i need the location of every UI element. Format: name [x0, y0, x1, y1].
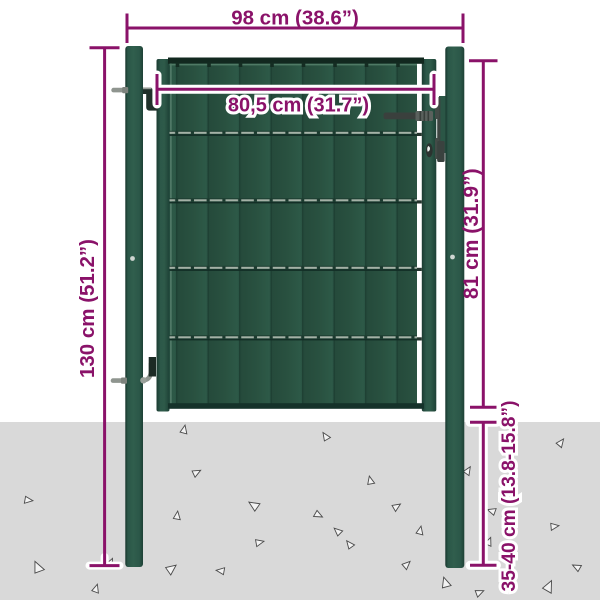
svg-text:98 cm (38.6”): 98 cm (38.6”)	[231, 6, 359, 29]
svg-text:130 cm (51.2”): 130 cm (51.2”)	[76, 239, 99, 378]
svg-text:35-40 cm (13.8-15.8”): 35-40 cm (13.8-15.8”)	[499, 401, 520, 592]
svg-text:81 cm (31.9”): 81 cm (31.9”)	[460, 168, 483, 299]
svg-text:80,5 cm (31.7”): 80,5 cm (31.7”)	[228, 95, 369, 117]
